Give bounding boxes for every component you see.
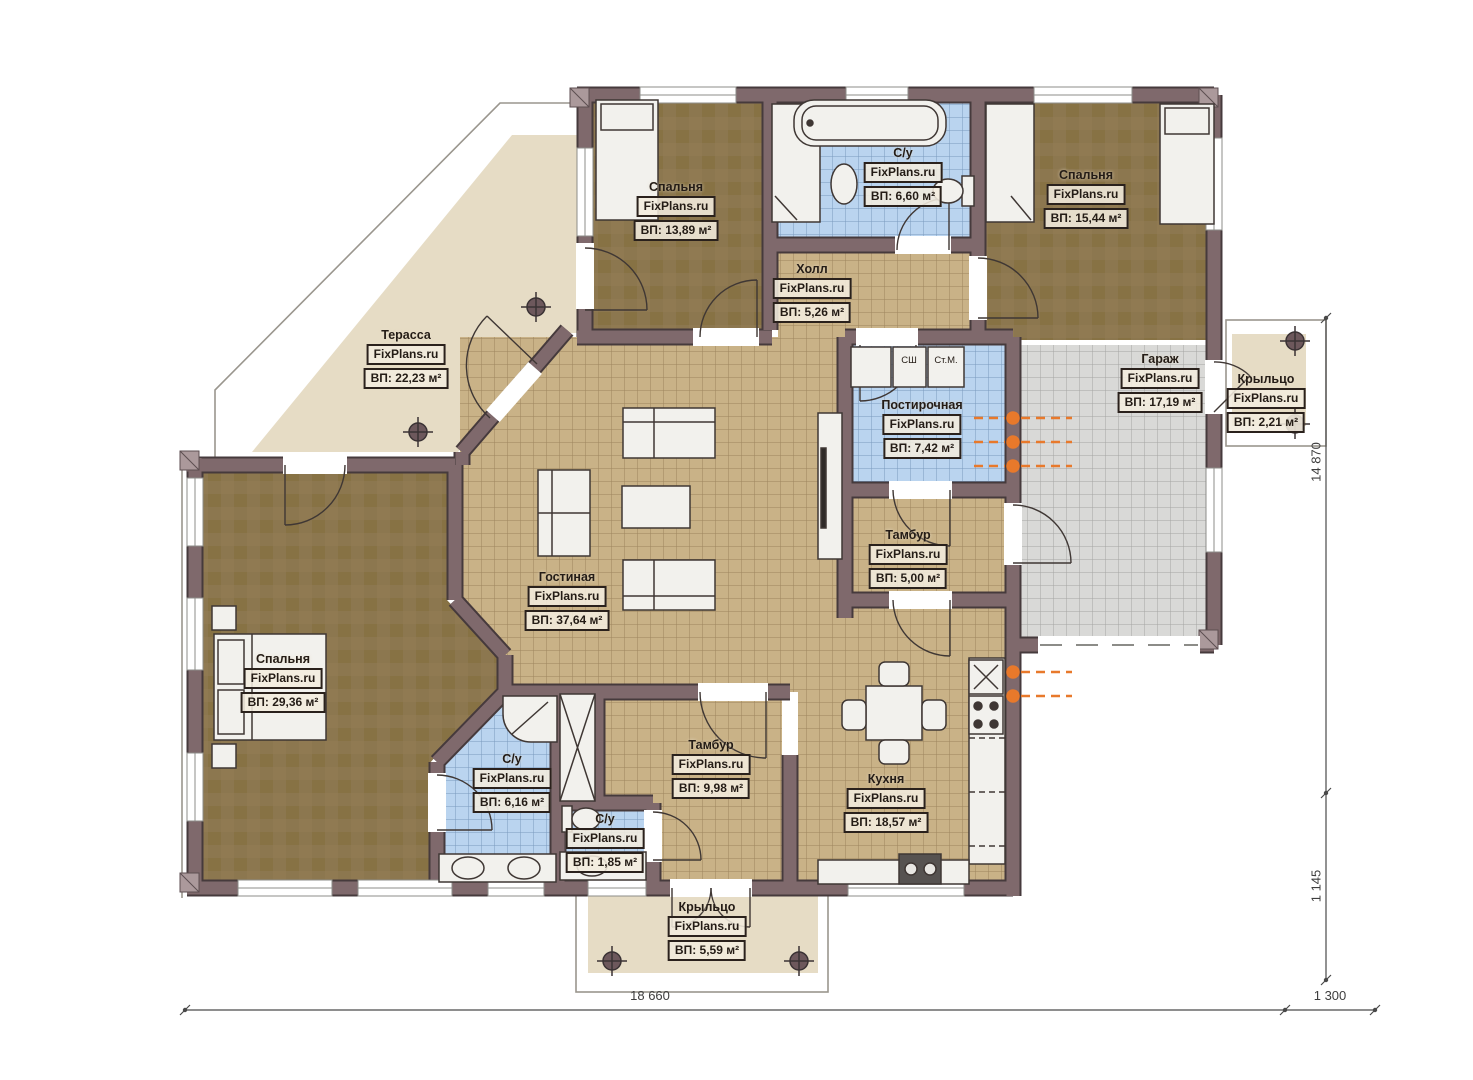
stove [969, 696, 1003, 734]
tambour-upper-floor [853, 498, 1005, 592]
nightstand [212, 606, 236, 630]
radiator [1008, 667, 1073, 678]
dimension-right-main: 14 870 [1309, 442, 1324, 482]
tv-unit [818, 413, 842, 559]
dryer-cabinet [893, 347, 926, 387]
dimension-bottom-main: 18 660 [630, 988, 670, 1003]
laundry-counter [851, 347, 891, 387]
floor-plan-drawing [0, 0, 1473, 1080]
bathtub [794, 100, 946, 146]
coffee-table [622, 486, 690, 528]
sink [577, 856, 607, 876]
sofa [623, 408, 715, 458]
dimension-bottom-right: 1 300 [1314, 988, 1347, 1003]
floor-plan: Спальня FixPlans.ru ВП: 13,89 м² С/у Fix… [0, 0, 1473, 1080]
sofa [623, 560, 715, 610]
kitchen-sink [969, 660, 1003, 694]
room-floors [203, 95, 1306, 973]
toilet [933, 176, 974, 206]
nightstand [212, 744, 236, 768]
bed [1160, 104, 1214, 224]
toilet [562, 806, 600, 832]
radiator [1008, 691, 1073, 702]
bed [214, 634, 326, 740]
dishwasher [899, 854, 941, 884]
dimension-right-bottom: 1 145 [1309, 870, 1324, 903]
linen-closet [560, 694, 595, 801]
sink [508, 857, 540, 879]
dryer-cabinet-label: СШ [901, 355, 917, 366]
sink [452, 857, 484, 879]
washing-machine-label: Ст.М. [934, 355, 957, 366]
wardrobe [986, 104, 1034, 222]
washing-machine [928, 347, 964, 387]
kitchen-counter [818, 860, 969, 884]
garage-floor [1021, 345, 1207, 640]
bed [596, 100, 658, 220]
hall-floor [778, 253, 978, 337]
armchair [538, 470, 590, 556]
sink [831, 164, 857, 204]
